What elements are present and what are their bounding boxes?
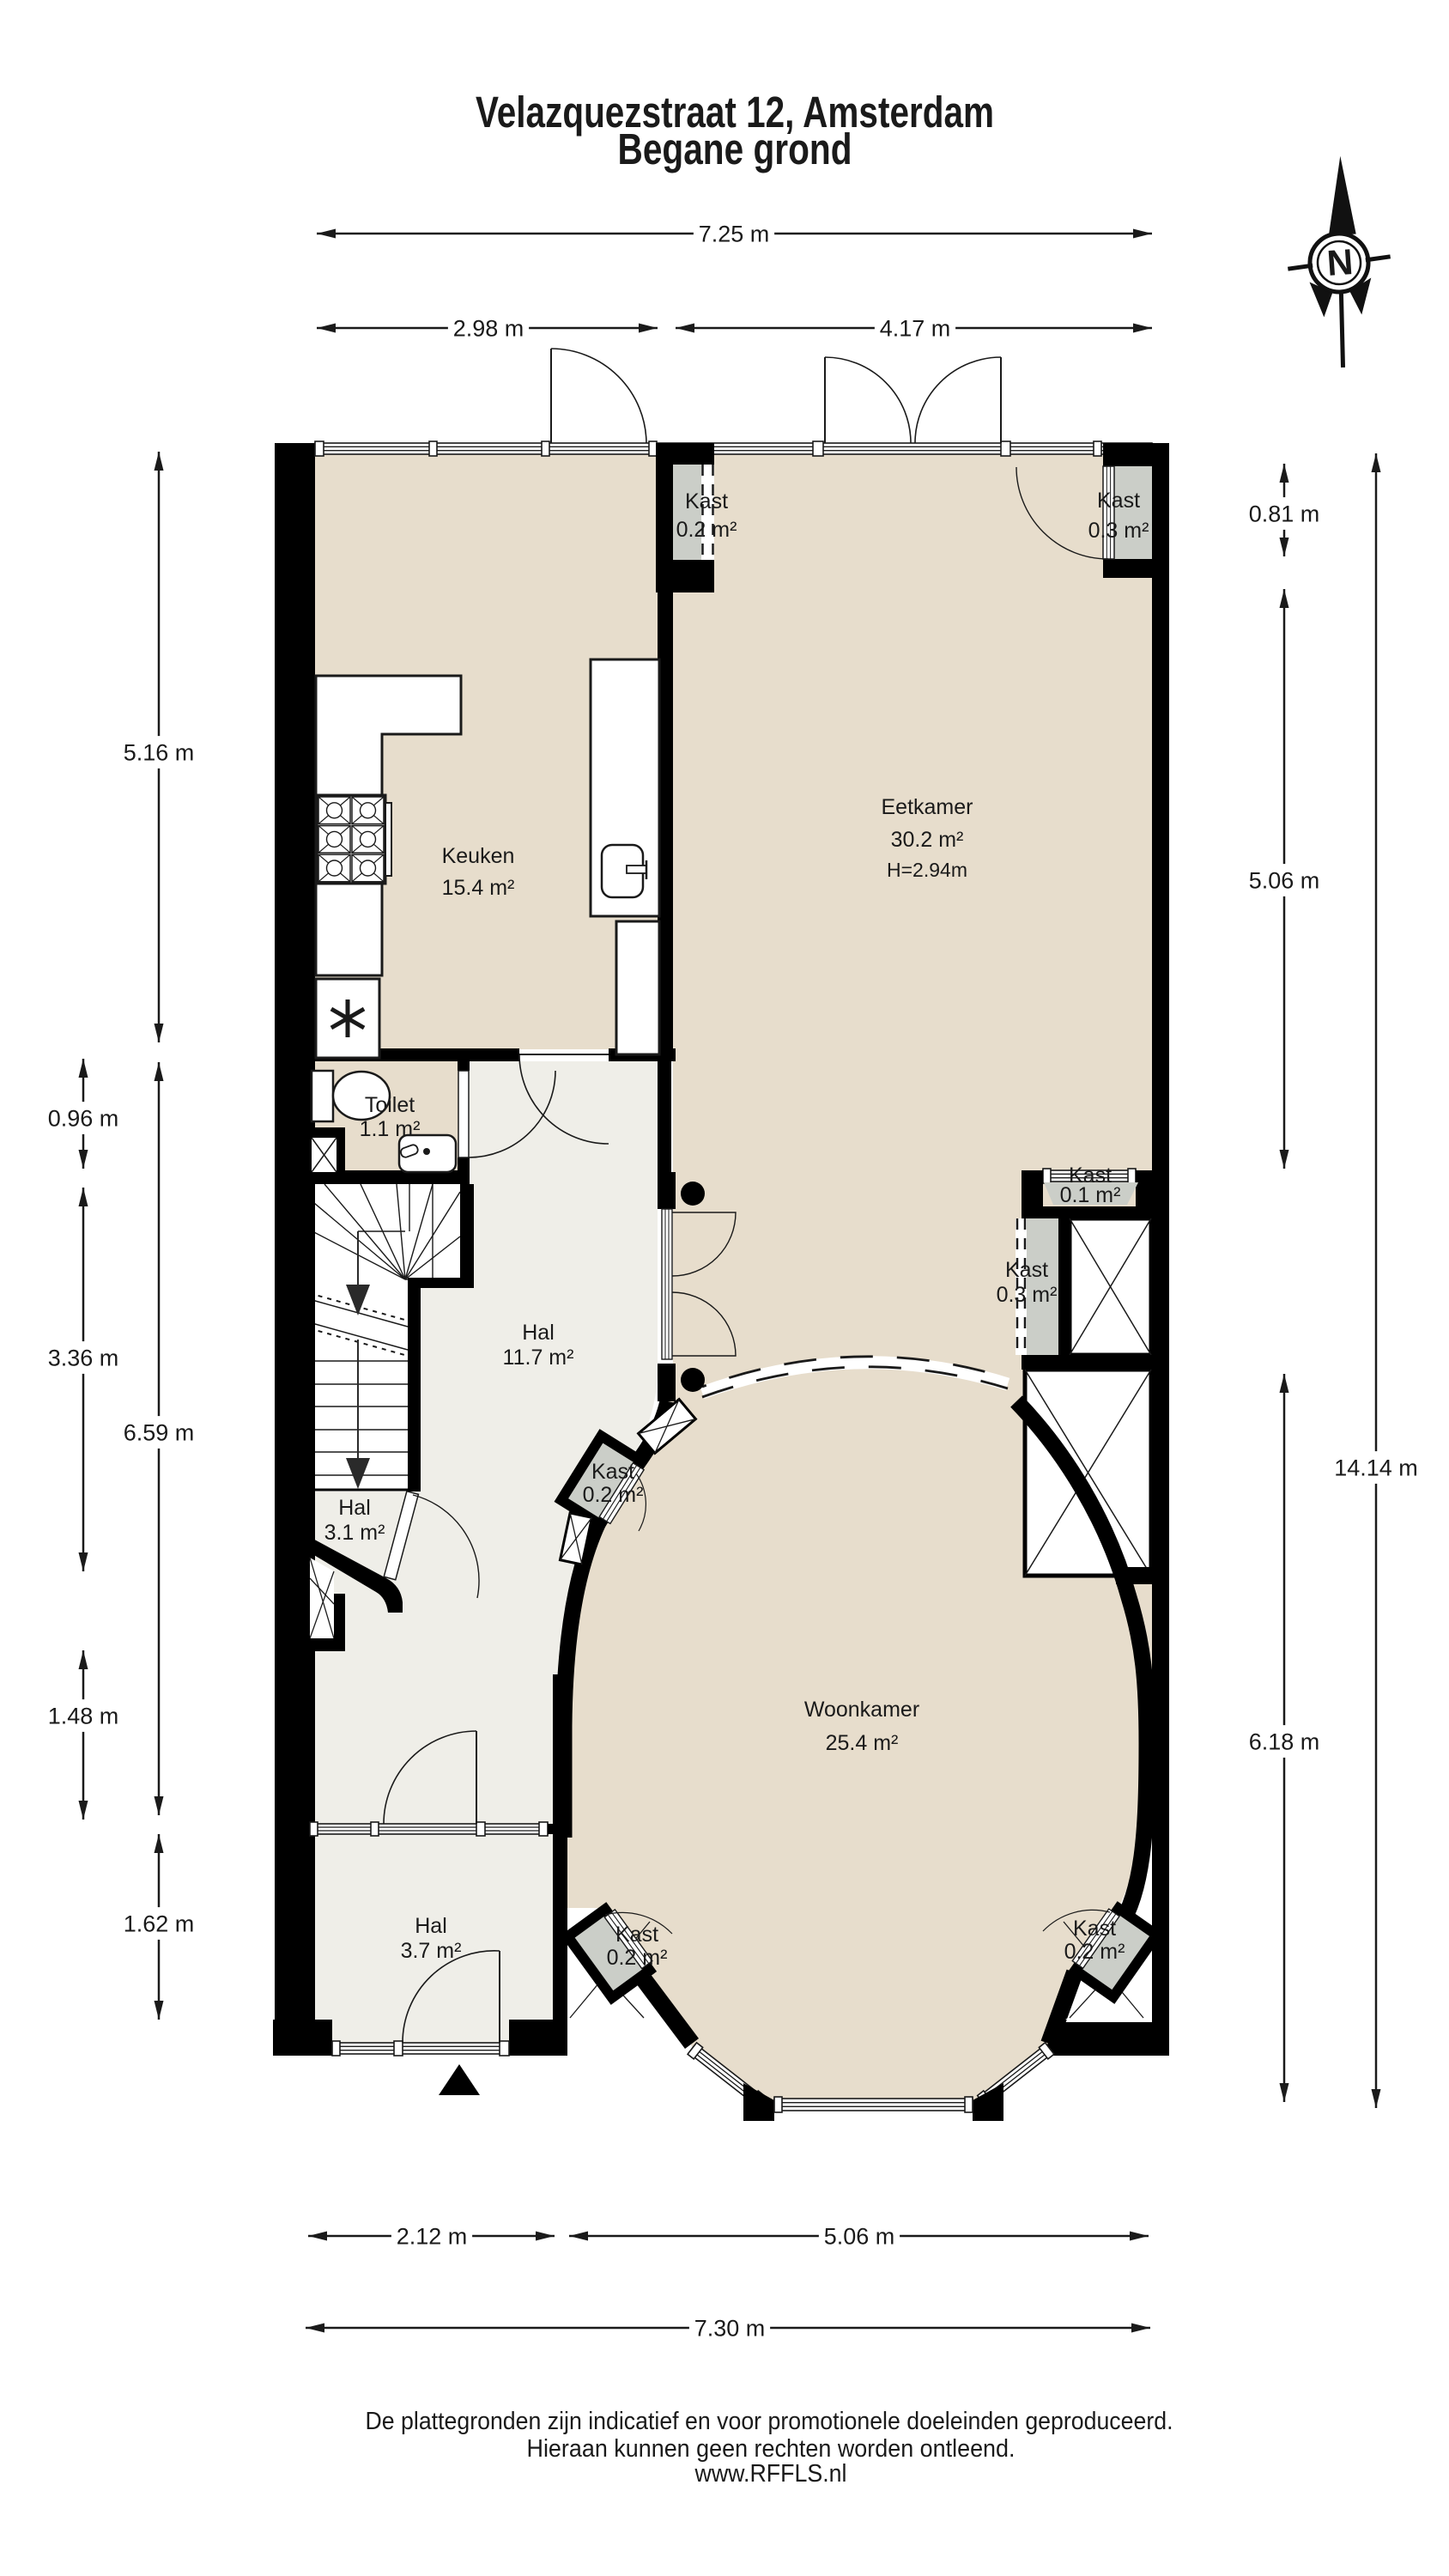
svg-text:Hal: Hal: [522, 1321, 555, 1345]
svg-text:0.96 m: 0.96 m: [48, 1106, 119, 1132]
svg-text:15.4 m²: 15.4 m²: [442, 876, 515, 900]
svg-text:Kast: Kast: [685, 489, 728, 513]
svg-text:1.1 m²: 1.1 m²: [360, 1117, 421, 1141]
svg-text:0.3 m²: 0.3 m²: [997, 1283, 1058, 1307]
svg-text:Kast: Kast: [615, 1923, 658, 1947]
svg-text:7.30 m: 7.30 m: [694, 2316, 766, 2342]
svg-text:0.2 m²: 0.2 m²: [583, 1483, 644, 1507]
svg-text:Hieraan kunnen geen rechten wo: Hieraan kunnen geen rechten worden ontle…: [527, 2435, 1016, 2463]
svg-text:Eetkamer: Eetkamer: [882, 795, 973, 819]
svg-text:5.06 m: 5.06 m: [1249, 868, 1320, 894]
svg-text:Kast: Kast: [591, 1460, 634, 1484]
svg-text:3.36 m: 3.36 m: [48, 1346, 119, 1371]
svg-text:3.7 m²: 3.7 m²: [401, 1939, 462, 1963]
svg-text:Woonkamer: Woonkamer: [804, 1698, 919, 1722]
svg-text:6.59 m: 6.59 m: [124, 1420, 195, 1446]
svg-text:0.2 m²: 0.2 m²: [676, 518, 737, 542]
svg-text:7.25 m: 7.25 m: [699, 222, 770, 247]
svg-text:0.2 m²: 0.2 m²: [607, 1946, 668, 1970]
svg-text:2.98 m: 2.98 m: [453, 316, 524, 342]
svg-text:H=2.94m: H=2.94m: [887, 859, 967, 881]
svg-text:3.1 m²: 3.1 m²: [324, 1521, 385, 1545]
svg-text:14.14 m: 14.14 m: [1334, 1455, 1418, 1481]
svg-text:Hal: Hal: [415, 1914, 447, 1938]
svg-text:6.18 m: 6.18 m: [1249, 1729, 1320, 1755]
svg-text:Hal: Hal: [338, 1496, 371, 1520]
svg-text:www.RFFLS.nl: www.RFFLS.nl: [694, 2460, 847, 2488]
svg-text:1.48 m: 1.48 m: [48, 1704, 119, 1729]
svg-text:Keuken: Keuken: [442, 844, 515, 868]
svg-text:Begane grond: Begane grond: [618, 125, 852, 173]
svg-text:30.2 m²: 30.2 m²: [891, 828, 964, 852]
svg-text:De plattegronden zijn indicati: De plattegronden zijn indicatief en voor…: [366, 2408, 1173, 2435]
svg-text:Toilet: Toilet: [365, 1093, 415, 1117]
svg-text:N: N: [1325, 241, 1355, 283]
svg-text:2.12 m: 2.12 m: [397, 2224, 468, 2250]
svg-text:5.16 m: 5.16 m: [124, 740, 195, 766]
svg-text:5.06 m: 5.06 m: [824, 2224, 895, 2250]
svg-text:4.17 m: 4.17 m: [880, 316, 951, 342]
svg-text:1.62 m: 1.62 m: [124, 1911, 195, 1937]
svg-text:0.2 m²: 0.2 m²: [1064, 1940, 1125, 1964]
svg-text:Kast: Kast: [1005, 1258, 1048, 1282]
svg-text:0.3 m²: 0.3 m²: [1088, 519, 1149, 543]
svg-text:Kast: Kast: [1073, 1917, 1116, 1941]
svg-text:0.81 m: 0.81 m: [1249, 501, 1320, 527]
svg-text:Kast: Kast: [1097, 489, 1140, 513]
svg-text:25.4 m²: 25.4 m²: [826, 1731, 899, 1755]
svg-text:11.7 m²: 11.7 m²: [503, 1346, 574, 1370]
svg-text:0.1 m²: 0.1 m²: [1060, 1183, 1121, 1207]
